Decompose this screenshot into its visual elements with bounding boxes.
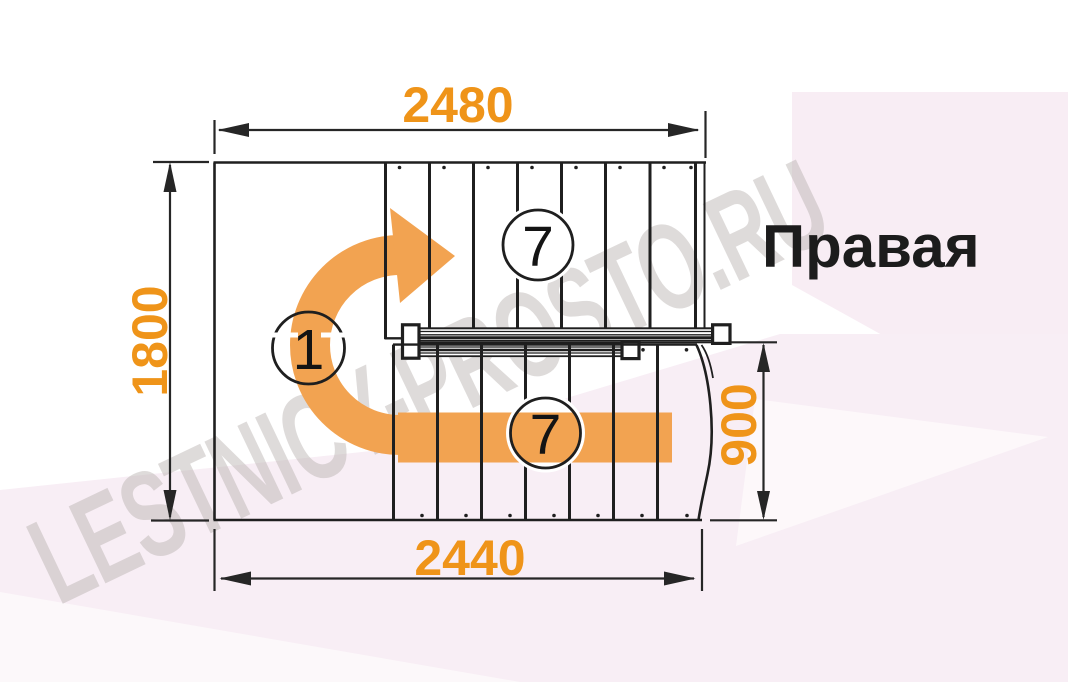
dim-arrowhead-left-icon [218, 123, 250, 137]
upper-flight-step-count: 7 [522, 215, 554, 279]
turn-landing-number: 1 [293, 318, 325, 382]
direction-arrowhead-icon [390, 208, 455, 303]
circle-break-tick [321, 333, 354, 338]
newel-post-right [713, 325, 730, 344]
newel-post-left [403, 325, 420, 358]
dim-arrowhead-up-icon [164, 162, 177, 192]
dimension-left-label: 1800 [122, 285, 178, 396]
dimension-right-label: 900 [711, 383, 767, 466]
lower-flight-step-count: 7 [530, 403, 562, 467]
dimension-bottom-label: 2440 [414, 530, 525, 586]
dim-arrowhead-right-icon [668, 123, 700, 137]
landing-rail [403, 325, 731, 359]
stair-plan-diagram: LESTNICY-PROSTO.RU [0, 0, 1068, 682]
stair-plan-drawing: LESTNICY-PROSTO.RU [0, 0, 1068, 682]
orientation-label: Правая [762, 213, 980, 280]
dimension-top-label: 2480 [402, 77, 513, 133]
